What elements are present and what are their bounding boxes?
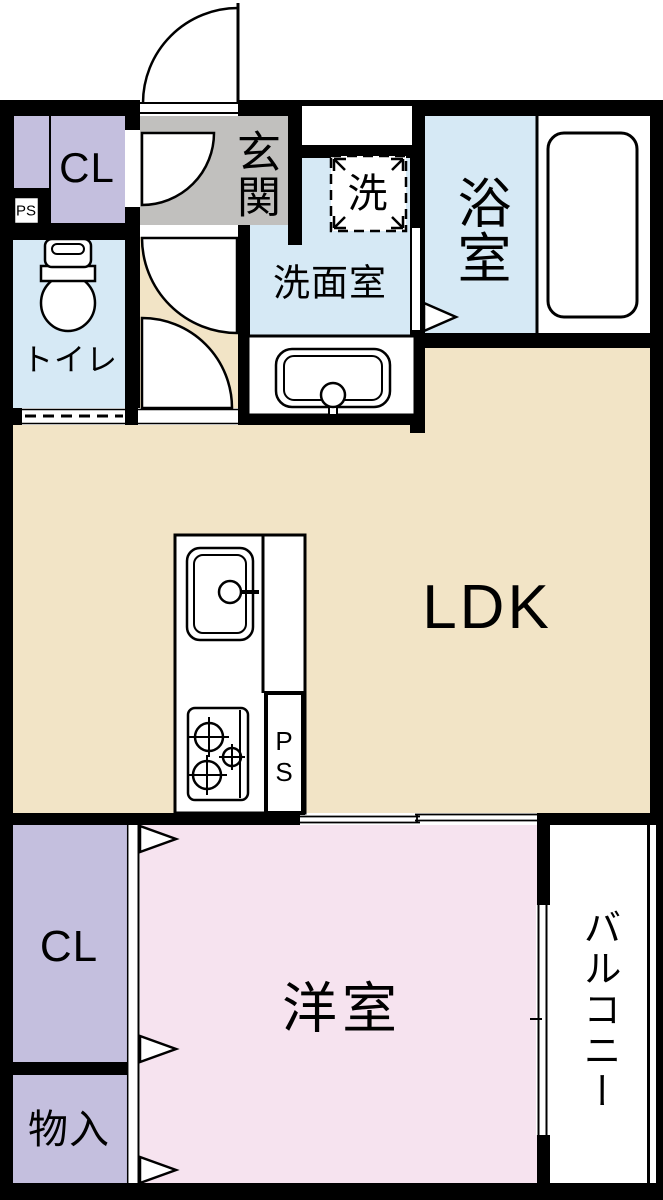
bathroom-label: 浴室 [452,175,506,285]
closet-upper-label: CL [59,147,115,189]
entrance-door-arc [143,8,238,103]
stove-icon [187,708,248,800]
toilet-icon [41,239,95,331]
vanity-sink-icon [248,336,415,415]
hallway-ldk-opening [138,408,238,425]
entrance-label: 玄関 [232,129,276,219]
toilet-door [22,408,125,425]
kitchen-sink-icon [187,548,259,640]
ps-upper-label: PS [16,204,36,219]
bathtub-icon [537,116,637,338]
washer-label: 洗 [348,174,389,214]
closet-lower-label: CL [40,925,98,969]
western-room-label: 洋室 [282,982,402,1037]
storage-label: 物入 [28,1110,110,1150]
ps-kitchen-label: PS [271,726,297,788]
toilet-label: トイレ [22,345,118,376]
bathroom-door [411,227,421,331]
washroom-label: 洗面室 [273,265,387,302]
floor-plan: CL PS 玄関 トイレ 洗 洗面室 浴室 LDK PS CL 洋室 物入 バル… [0,0,663,1200]
closet-upper-door-gap [125,130,140,207]
ldk-label: LDK [422,577,552,639]
balcony-label: バルコニー [579,908,617,1113]
washroom-window [302,106,412,145]
closet-upper-side-floor [14,116,49,188]
